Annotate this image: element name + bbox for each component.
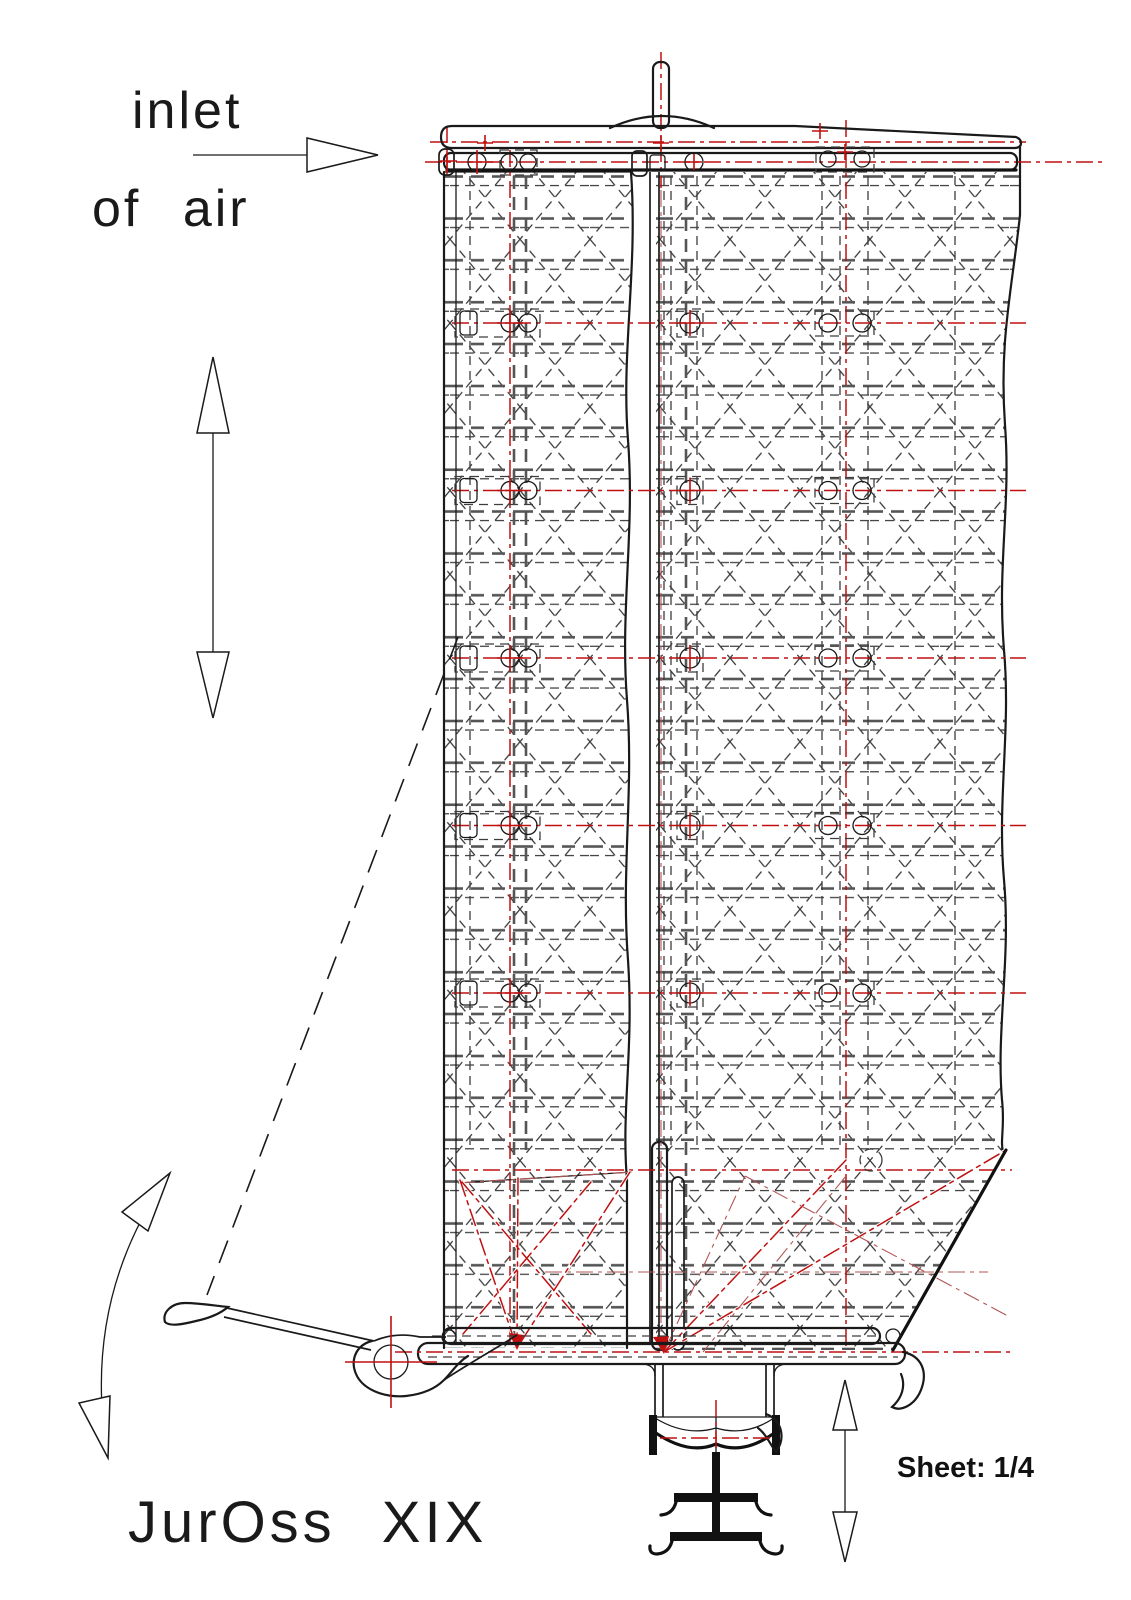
rail-foot [650,1452,782,1554]
inlet-label-line1: inlet [132,82,242,140]
vertical-travel-arrow [197,357,229,718]
air-inlet-annotation: inlet of air [92,82,378,238]
drawing-title: JurOss XIX [128,1490,487,1555]
vertical-lift-arrow [833,1380,857,1562]
rail-end-flap [892,1352,924,1409]
lever-handle [164,1303,228,1325]
air-inlet-arrow [193,138,378,172]
sheet-number: Sheet: 1/4 [897,1452,1034,1484]
drawing-sheet: inlet of air [0,0,1131,1600]
pivot-crosshair [345,1316,437,1408]
lever-arm [224,1308,374,1350]
sail-structure [164,52,1105,1554]
title-block: JurOss XIX Sheet: 1/4 [128,1452,1034,1555]
top-rail-assembly [439,62,1021,176]
left-sail-panel [444,172,633,1348]
juross-xix-technical-drawing: inlet of air [0,0,1131,1600]
inlet-label-line2: of air [92,180,250,238]
swing-arc-arrow [79,1173,170,1458]
linkage-dashed-line [207,637,458,1295]
